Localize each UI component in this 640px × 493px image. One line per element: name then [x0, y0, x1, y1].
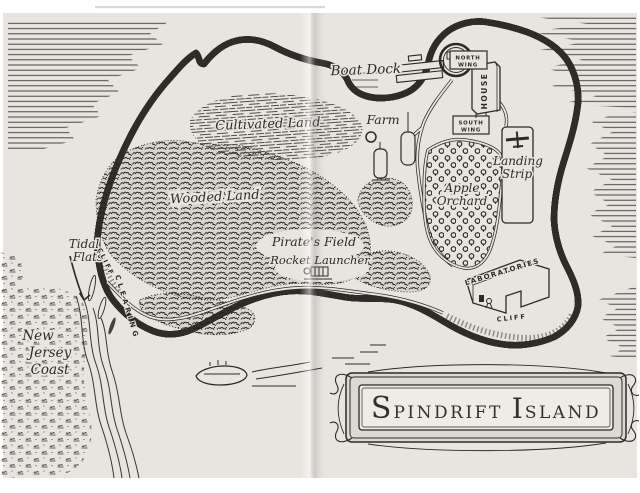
map-page: Boat Dock Cultivated Land Farm Wooded La…	[0, 0, 640, 493]
svg-text:Jersey: Jersey	[26, 345, 72, 361]
svg-text:Tidal: Tidal	[69, 237, 100, 251]
fold-crease	[300, 13, 328, 478]
label-north-wing: NORTH WING	[455, 56, 480, 69]
svg-text:NORTH: NORTH	[455, 56, 480, 62]
svg-text:New: New	[21, 328, 54, 344]
svg-text:Strip: Strip	[502, 167, 533, 181]
svg-text:Coast: Coast	[31, 362, 70, 378]
spindrift-island-map: Boat Dock Cultivated Land Farm Wooded La…	[0, 0, 640, 493]
title-cartouche: SPINDRIFTISLAND	[330, 365, 639, 451]
label-boat-dock: Boat Dock	[329, 61, 401, 79]
label-house: HOUSE	[480, 73, 489, 110]
scan-smudge	[95, 6, 325, 8]
label-farm: Farm	[365, 112, 399, 127]
svg-text:WING: WING	[458, 63, 478, 69]
svg-text:SOUTH: SOUTH	[458, 121, 483, 127]
svg-text:Landing: Landing	[492, 154, 543, 168]
svg-text:WING: WING	[461, 128, 481, 134]
lab-door	[479, 295, 484, 302]
svg-text:Orchard: Orchard	[437, 194, 488, 208]
label-south-wing: SOUTH WING	[458, 121, 483, 134]
svg-text:Apple: Apple	[444, 181, 480, 195]
